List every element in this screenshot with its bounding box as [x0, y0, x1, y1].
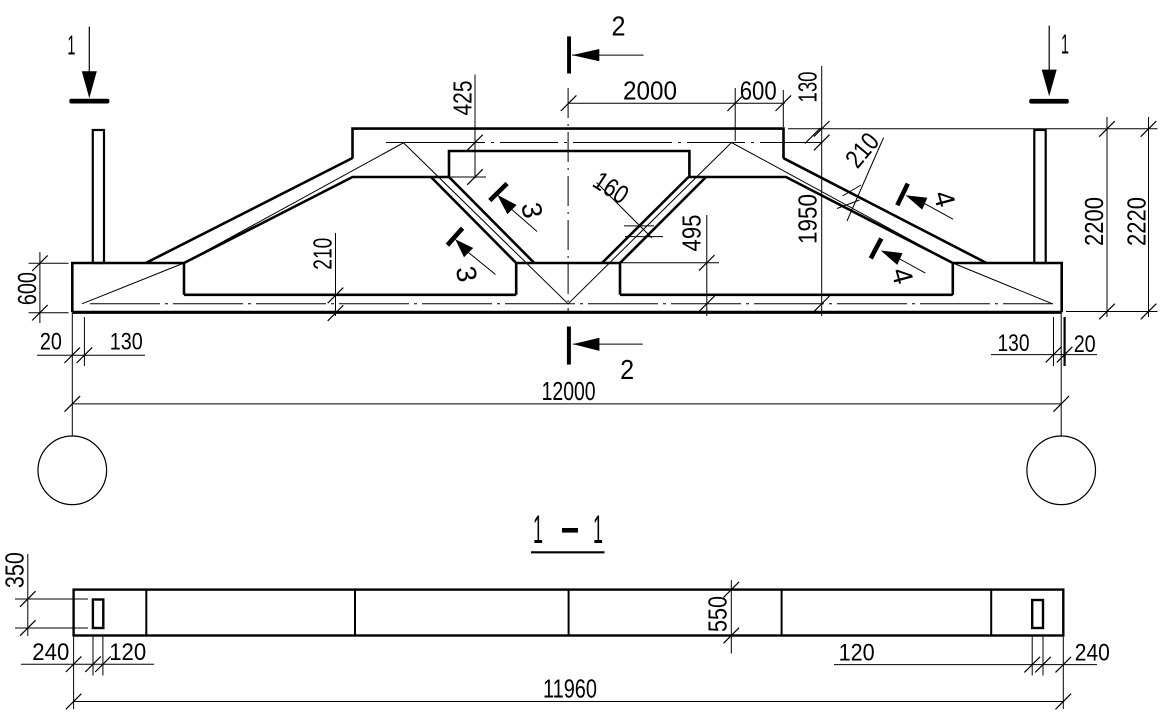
svg-text:2220: 2220	[1121, 197, 1151, 246]
svg-text:1: 1	[1061, 29, 1069, 60]
svg-text:120: 120	[109, 639, 146, 666]
svg-text:600: 600	[12, 272, 42, 305]
svg-text:2000: 2000	[623, 76, 677, 106]
svg-text:2: 2	[620, 354, 634, 385]
svg-text:20: 20	[40, 329, 62, 356]
svg-text:550: 550	[702, 596, 732, 632]
svg-text:425: 425	[447, 81, 477, 116]
svg-text:12000: 12000	[542, 376, 596, 406]
svg-text:350: 350	[0, 552, 30, 588]
svg-text:1: 1	[533, 508, 543, 552]
svg-text:130: 130	[998, 330, 1030, 357]
svg-text:2200: 2200	[1079, 197, 1109, 246]
svg-text:1950: 1950	[793, 194, 823, 244]
svg-text:495: 495	[677, 215, 707, 252]
svg-text:2: 2	[612, 10, 626, 41]
svg-text:20: 20	[1074, 331, 1096, 358]
svg-text:11960: 11960	[543, 673, 597, 703]
svg-text:600: 600	[740, 76, 777, 106]
svg-text:210: 210	[308, 238, 338, 270]
svg-text:120: 120	[839, 639, 875, 666]
svg-text:130: 130	[110, 329, 143, 356]
svg-text:1: 1	[67, 30, 75, 61]
svg-text:240: 240	[32, 639, 69, 666]
svg-text:240: 240	[1075, 639, 1110, 666]
svg-text:1: 1	[593, 508, 603, 552]
svg-text:130: 130	[793, 72, 823, 103]
